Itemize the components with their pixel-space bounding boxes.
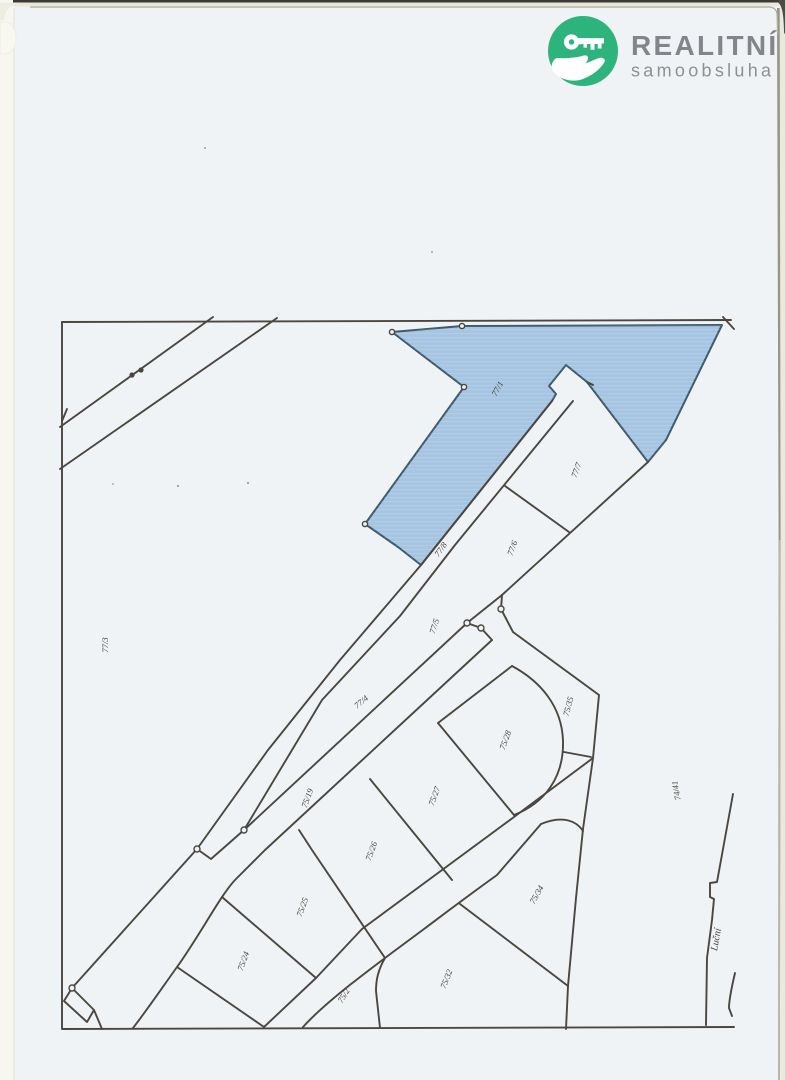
svg-text:REALITNÍ: REALITNÍ — [631, 30, 779, 61]
svg-text:samoobsluha: samoobsluha — [631, 61, 774, 81]
svg-text:77/3: 77/3 — [100, 637, 110, 652]
